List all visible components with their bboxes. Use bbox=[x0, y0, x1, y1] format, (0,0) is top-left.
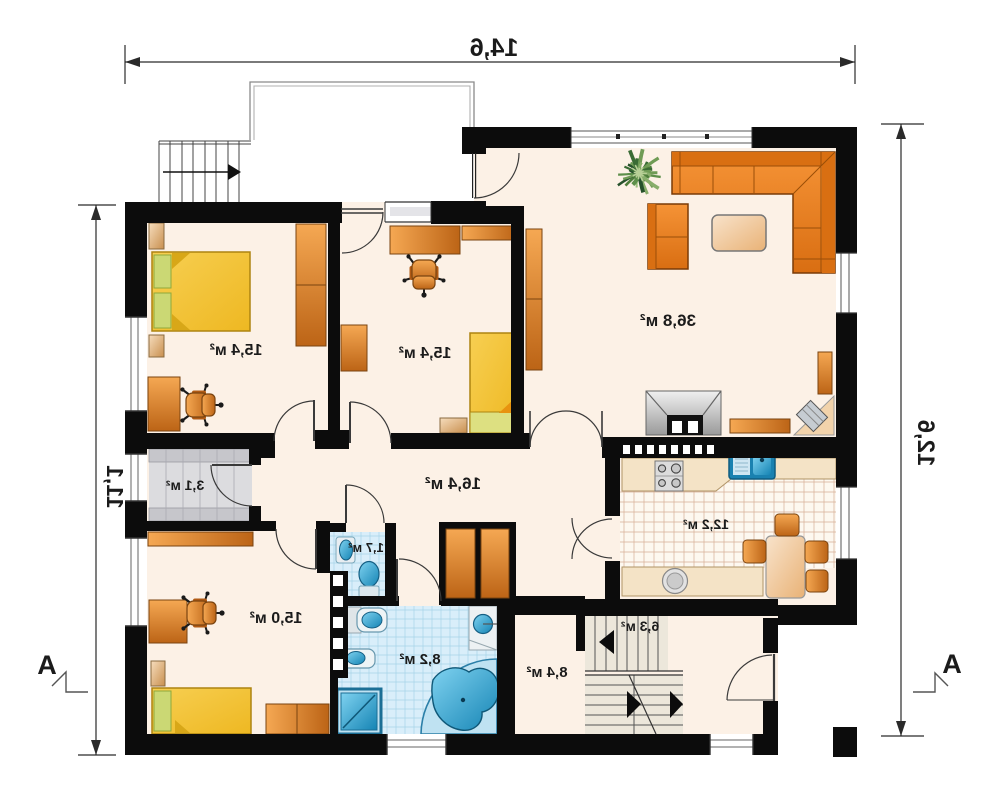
svg-text:15,0 м²: 15,0 м² bbox=[250, 610, 303, 627]
svg-text:11,1: 11,1 bbox=[102, 465, 128, 509]
svg-text:12,2 м²: 12,2 м² bbox=[683, 516, 729, 532]
svg-text:16,4 м²: 16,4 м² bbox=[425, 474, 481, 493]
svg-text:6,3 м²: 6,3 м² bbox=[620, 618, 659, 634]
svg-text:12,6: 12,6 bbox=[912, 420, 939, 467]
svg-text:8,2 м²: 8,2 м² bbox=[399, 651, 440, 668]
svg-text:15,4 м²: 15,4 м² bbox=[210, 342, 263, 359]
svg-text:8,4 м²: 8,4 м² bbox=[526, 664, 567, 681]
svg-text:3,1 м²: 3,1 м² bbox=[165, 477, 204, 493]
svg-text:14,6: 14,6 bbox=[470, 34, 519, 62]
svg-text:1,7 м²: 1,7 м² bbox=[348, 540, 384, 555]
svg-text:A: A bbox=[37, 650, 57, 680]
svg-text:36,8 м²: 36,8 м² bbox=[640, 311, 696, 330]
svg-text:15,4 м²: 15,4 м² bbox=[399, 345, 452, 362]
svg-text:A: A bbox=[942, 649, 962, 679]
